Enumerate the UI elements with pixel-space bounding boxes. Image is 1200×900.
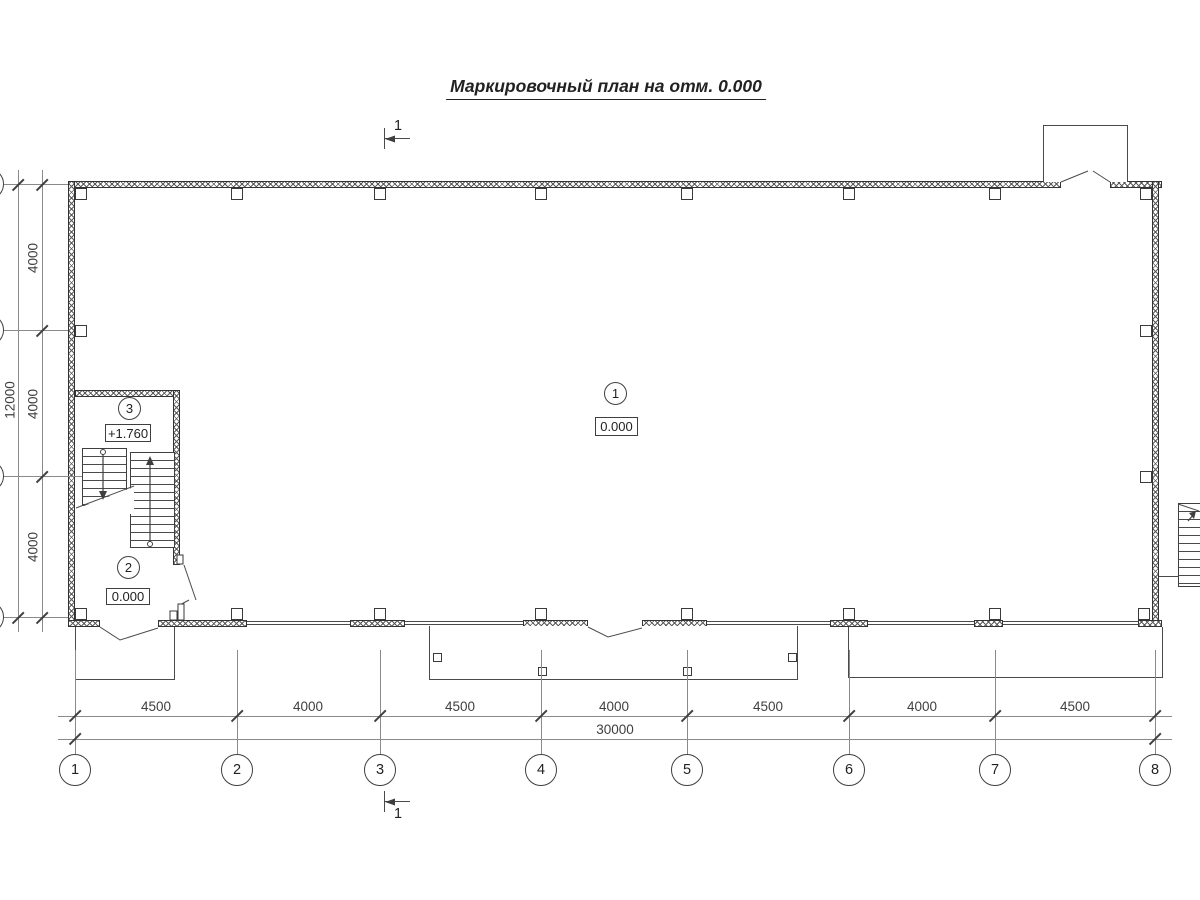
pilaster — [1140, 325, 1152, 337]
row-axis-line — [0, 184, 68, 185]
pilaster — [231, 188, 243, 200]
door-swing — [184, 565, 196, 600]
section-label: 1 — [394, 806, 402, 822]
axis-extension — [237, 650, 238, 756]
section-arrowhead — [385, 136, 395, 143]
wall-left — [68, 181, 75, 627]
wall-bottom-seg — [974, 620, 1003, 627]
wall-bottom-seg — [830, 620, 868, 627]
door-jamb — [178, 604, 184, 620]
room-marker: 2 — [117, 556, 140, 579]
porch-top-right — [1043, 125, 1128, 182]
dim-line-left-inner — [42, 170, 43, 632]
section-label: 1 — [394, 118, 402, 134]
drawing-title: Маркировочный план на отм. 0.000 — [446, 76, 766, 100]
axis-number: 3 — [376, 762, 384, 778]
wall-bottom-seg — [1138, 620, 1162, 627]
porch-post — [788, 653, 797, 662]
axis-extension — [995, 650, 996, 756]
porch-right — [848, 627, 1163, 678]
floor-plan-canvas: Маркировочный план на отм. 0.000 — [0, 0, 1200, 900]
pilaster — [1138, 608, 1150, 620]
room-marker: 3 — [118, 397, 141, 420]
axis-number: 4 — [537, 762, 545, 778]
window-strip — [405, 621, 523, 625]
column-axis-bubble: 6 — [833, 754, 865, 786]
pilaster — [843, 188, 855, 200]
dim-total: 30000 — [596, 722, 634, 737]
column-axis-bubble: 2 — [221, 754, 253, 786]
door-swing — [178, 600, 189, 606]
pilaster — [681, 608, 693, 620]
pilaster — [989, 608, 1001, 620]
axis-number: 6 — [845, 762, 853, 778]
section-arrowhead — [385, 799, 395, 806]
axis-extension — [849, 650, 850, 756]
column-axis-bubble: 1 — [59, 754, 91, 786]
column-axis-bubble: 3 — [364, 754, 396, 786]
axis-extension — [541, 650, 542, 756]
pilaster — [535, 188, 547, 200]
window-strip — [707, 621, 830, 625]
row-axis-bubble — [0, 168, 4, 200]
wall-bottom-seg — [158, 620, 247, 627]
pilaster — [1140, 188, 1152, 200]
porch-middle — [429, 626, 798, 680]
level-value: 0.000 — [600, 419, 633, 434]
axis-number: 7 — [991, 762, 999, 778]
pilaster — [989, 188, 1001, 200]
wall-top-main — [68, 181, 1061, 188]
column-axis-bubble: 5 — [671, 754, 703, 786]
axis-extension — [380, 650, 381, 756]
row-axis-bubble — [0, 314, 4, 346]
exterior-stair — [1178, 503, 1200, 587]
room-number: 2 — [125, 560, 132, 575]
row-axis-line — [0, 617, 68, 618]
dim-value: 4500 — [753, 699, 783, 714]
row-axis-bubble — [0, 601, 4, 633]
room-level: +1.760 — [105, 424, 151, 442]
porch-post — [433, 653, 442, 662]
row-axis-bubble — [0, 460, 4, 492]
column-axis-bubble: 8 — [1139, 754, 1171, 786]
column-axis-bubble: 4 — [525, 754, 557, 786]
column-axis-bubble: 7 — [979, 754, 1011, 786]
pilaster — [75, 188, 87, 200]
section-mark-line — [384, 801, 410, 802]
pilaster — [843, 608, 855, 620]
room-number: 3 — [126, 401, 133, 416]
dim-value: 4500 — [141, 699, 171, 714]
axis-extension — [75, 650, 76, 756]
row-axis-line — [0, 330, 68, 331]
dim-value: 4000 — [293, 699, 323, 714]
level-value: +1.760 — [108, 426, 148, 441]
dim-value: 4500 — [445, 699, 475, 714]
stairwell-wall-top — [75, 390, 180, 397]
dim-line-left-outer — [18, 170, 19, 632]
section-mark-line — [384, 138, 410, 139]
axis-number: 1 — [71, 762, 79, 778]
pilaster — [75, 608, 87, 620]
axis-number: 5 — [683, 762, 691, 778]
wall-bottom-seg — [68, 620, 100, 627]
wall-bottom-seg — [350, 620, 405, 627]
pilaster — [75, 325, 87, 337]
annotation-overlay — [0, 0, 1200, 900]
window-strip — [868, 621, 974, 625]
dim-value: 4500 — [1060, 699, 1090, 714]
axis-extension — [1155, 650, 1156, 756]
stair-flight-up — [130, 452, 175, 548]
dim-value: 4000 — [907, 699, 937, 714]
dim-total: 12000 — [3, 381, 18, 419]
room-number: 1 — [612, 386, 619, 401]
pilaster — [681, 188, 693, 200]
room-level: 0.000 — [106, 588, 150, 605]
window-strip — [247, 621, 350, 625]
dim-line-bottom-outer — [58, 739, 1172, 740]
axis-number: 2 — [233, 762, 241, 778]
pilaster — [1140, 471, 1152, 483]
porch-post — [538, 667, 547, 676]
wall-right — [1152, 181, 1159, 627]
dim-value: 4000 — [26, 532, 41, 562]
exterior-stair-landing-line — [1159, 576, 1178, 577]
window-strip — [1003, 621, 1138, 625]
dim-value: 4000 — [26, 389, 41, 419]
room-marker: 1 — [604, 382, 627, 405]
door-jamb — [170, 611, 177, 620]
room-level: 0.000 — [595, 417, 638, 436]
stair-flight-down — [82, 448, 127, 506]
porch-left — [75, 627, 175, 680]
dim-line-bottom-inner — [58, 716, 1172, 717]
dim-value: 4000 — [599, 699, 629, 714]
pilaster — [374, 608, 386, 620]
dim-value: 4000 — [26, 243, 41, 273]
pilaster — [535, 608, 547, 620]
axis-extension — [687, 650, 688, 756]
pilaster — [231, 608, 243, 620]
axis-number: 8 — [1151, 762, 1159, 778]
pilaster — [374, 188, 386, 200]
level-value: 0.000 — [112, 589, 145, 604]
